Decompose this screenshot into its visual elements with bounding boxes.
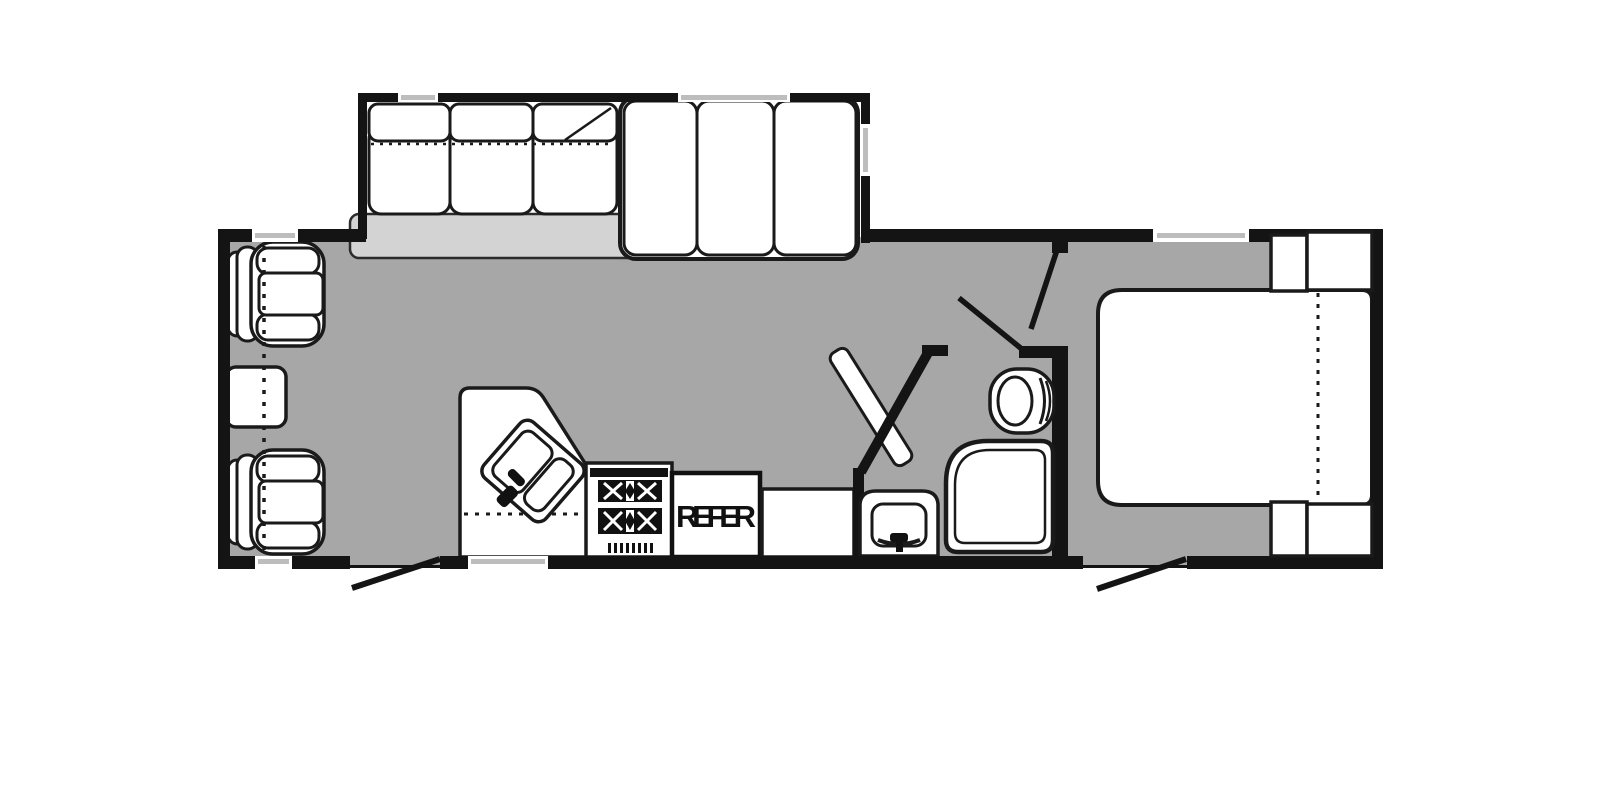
bunk-bed-panel [624,101,697,255]
window [861,124,870,176]
window [678,93,790,102]
refrigerator: REFER [672,473,760,557]
nightstand-cabinet [1307,232,1372,290]
side-table [226,367,286,427]
nightstand-cabinet [1271,235,1307,291]
bottom-wall [218,556,255,569]
queen-bed [1098,290,1372,505]
window [398,93,438,102]
left-wall [218,229,230,569]
armrest [257,248,319,274]
bunk-bed-panel [697,101,774,255]
burner-grate [598,508,662,534]
sofa-back-cushion [369,104,450,141]
slide-out-right-wall [861,93,870,124]
top-wall [298,229,366,242]
window [1153,229,1249,242]
entry-door-front [350,556,440,588]
armrest [257,522,319,548]
top-wall [862,229,1153,242]
entry-door-rear [1083,556,1187,589]
window [255,556,292,569]
vanity-sink [860,491,938,556]
armrest [257,456,319,482]
slide-out-top-wall [790,93,870,102]
window [252,229,298,242]
bottom-wall [548,556,1083,569]
bottom-wall [292,556,350,569]
seat [259,273,323,315]
bunk-bed-panel [774,101,856,255]
bottom-wall [1187,556,1378,569]
bottom-wall [440,556,468,569]
sofa-back-cushion [450,104,533,141]
stove [586,463,672,557]
nightstand-cabinet [1307,504,1372,556]
window [468,556,548,569]
toilet [990,369,1054,433]
floorplan: REFER [0,0,1600,800]
recliner-chair-1 [228,242,324,346]
slide-out-top-wall [438,93,678,102]
sofa [369,104,617,214]
sofa-back-cushion [533,104,617,141]
counter [762,489,854,557]
seat [259,481,323,523]
bunk-bed [620,97,858,259]
shower [946,441,1053,552]
slide-out-top-wall [358,93,398,102]
floorplan-svg: REFER [0,0,1600,800]
recliner-chair-2 [228,450,324,554]
slide-out-left-wall [358,93,367,239]
vanity-faucet [890,533,908,542]
burner-grate [598,480,662,502]
vanity-faucet [896,542,903,552]
refer-label: REFER [676,499,756,534]
armrest [257,314,319,340]
bedroom [1098,290,1372,505]
nightstand-cabinet [1271,502,1307,556]
wall-stub [922,345,948,356]
